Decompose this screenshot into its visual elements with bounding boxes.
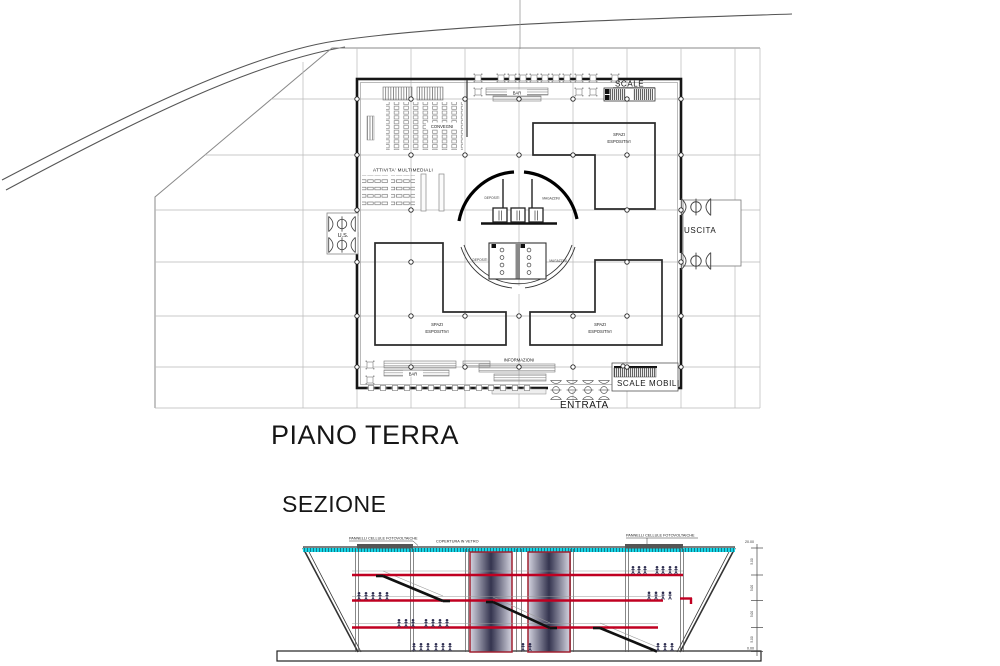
- label-depositi: DEPOSITI: [485, 196, 500, 200]
- multimedia-tables-icon: [362, 175, 388, 206]
- glass-roof-icon: [303, 548, 735, 552]
- panel-icon: [439, 174, 444, 211]
- label-espositivi: ESPOSITIVI: [588, 329, 611, 334]
- elevation-labels: 20.00 0.00 5.00 5.00 5.00 5.00: [745, 540, 754, 651]
- revolving-door-icon: [551, 380, 562, 399]
- label-depositi: DEPOSITI: [473, 258, 488, 262]
- label-uscita: USCITA: [684, 226, 716, 235]
- elevator-tower: [528, 552, 570, 652]
- label-attivita: ATTIVITA' MULTIMEDIALI: [373, 168, 433, 173]
- stairs-icon: [633, 89, 653, 100]
- label-scale: SCALE: [615, 80, 644, 89]
- floor-slabs: [352, 575, 692, 628]
- elevators-icon: [493, 208, 543, 222]
- panel-icon: [421, 174, 426, 211]
- label-glass: COPERTURA IN VETRO: [436, 540, 479, 544]
- elev-dim: 5.00: [750, 558, 754, 564]
- bar-top-area: BAR: [474, 74, 620, 102]
- pv-panel-icon: [357, 544, 413, 549]
- counter-icon: [417, 87, 443, 100]
- elev-bottom: 0.00: [747, 647, 754, 651]
- label-scale-mobili: SCALE MOBILI: [617, 379, 680, 388]
- label-magazzini: MAGAZZINI: [542, 197, 559, 201]
- central-core: DEPOSITI MAGAZZINI DEPOSITI MAGAZZINI: [459, 172, 577, 294]
- elev-top: 20.00: [745, 540, 754, 544]
- label-entrata: ENTRATA: [560, 400, 609, 411]
- label-pv-right: PANNELLI CELLULE FOTOVOLTAICHE: [626, 534, 695, 538]
- attivita-area: ATTIVITA' MULTIMEDIALI: [362, 168, 444, 212]
- label-espositivi: ESPOSITIVI: [425, 329, 448, 334]
- label-informazioni: INFORMAZIONI: [504, 358, 534, 363]
- section-drawing: PANNELLI CELLULE FOTOVOLTAICHE COPERTURA…: [277, 534, 763, 662]
- building-plan: CONVEGNI ATTIVITA' MULTIMEDIALI BAR: [327, 74, 741, 412]
- label-us: U.S.: [338, 233, 349, 239]
- label-spazi: SPAZI: [613, 132, 625, 137]
- escalator-icon: [614, 368, 656, 377]
- elev-dim: 5.00: [750, 636, 754, 642]
- label-spazi: SPAZI: [594, 322, 606, 327]
- uscita-exit: USCITA: [681, 199, 741, 270]
- label-convegni: CONVEGNI: [431, 124, 453, 129]
- bar-counter-icon: [384, 361, 456, 368]
- label-pv-left: PANNELLI CELLULE FOTOVOLTAICHE: [349, 537, 418, 541]
- label-magazzini: MAGAZZINI: [549, 259, 566, 263]
- label-espositivi: ESPOSITIVI: [607, 139, 630, 144]
- escalator-area: SCALE MOBILI: [612, 363, 680, 391]
- label-bar-top: BAR: [513, 91, 522, 96]
- drawing-canvas: CONVEGNI ATTIVITA' MULTIMEDIALI BAR: [0, 0, 1000, 666]
- counter-icon: [383, 87, 412, 100]
- revolving-door-icon: [567, 380, 578, 399]
- multimedia-tables-icon: [391, 175, 415, 206]
- revolving-door-icon: [599, 380, 610, 399]
- plan-title: PIANO TERRA: [271, 420, 459, 450]
- label-bar-bottom: BAR: [409, 372, 418, 377]
- architectural-drawing-sheet: CONVEGNI ATTIVITA' MULTIMEDIALI BAR: [0, 0, 1000, 666]
- label-spazi: SPAZI: [431, 322, 443, 327]
- ramp-icon: [367, 116, 374, 140]
- stairs-icon: [610, 89, 626, 100]
- elev-dim: 5.00: [750, 585, 754, 591]
- section-title: SEZIONE: [282, 491, 386, 517]
- convegni-area: CONVEGNI: [367, 87, 463, 150]
- elev-dim: 5.00: [750, 611, 754, 617]
- ground-base: [277, 651, 761, 661]
- us-exit: U.S.: [327, 213, 358, 254]
- pv-panel-icon: [625, 544, 683, 549]
- exhibition-labels: SPAZI ESPOSITIVI SPAZI ESPOSITIVI SPAZI …: [425, 132, 630, 334]
- revolving-door-icon: [583, 380, 594, 399]
- section-annotations: PANNELLI CELLULE FOTOVOLTAICHE COPERTURA…: [349, 534, 698, 546]
- info-counter-icon: [494, 374, 546, 381]
